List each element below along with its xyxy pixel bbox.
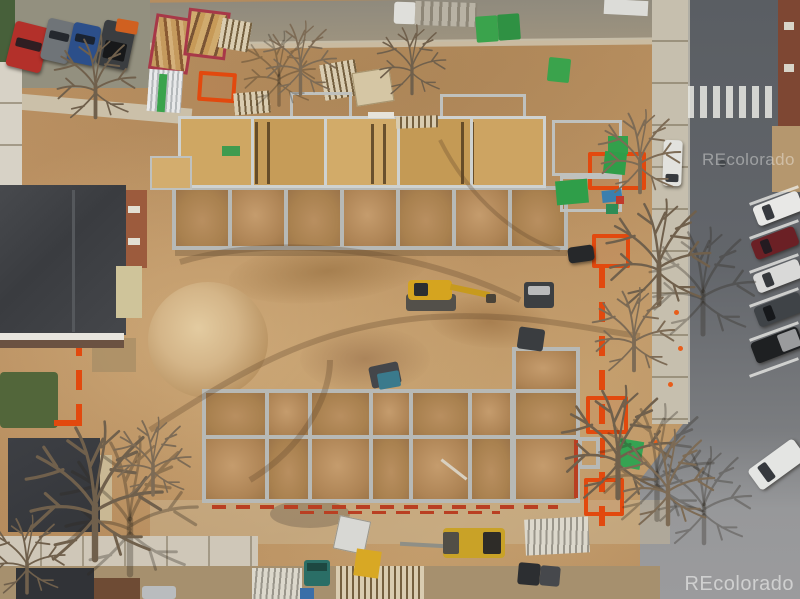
traffic-cone-3 [668, 382, 673, 387]
foundation-bay [232, 190, 284, 246]
green-fence-panel [616, 438, 644, 470]
stem-wall-bays [172, 186, 568, 250]
dirt-mound-2 [300, 326, 430, 392]
white-beam [368, 112, 394, 118]
osb-panel-left-wing [150, 156, 192, 190]
yellow-storage-box [353, 548, 382, 578]
excavator-bucket [486, 294, 496, 303]
foundation-grid-right-tower [512, 347, 580, 503]
aerial-construction-photo: REcolorado REcolorado [0, 0, 800, 599]
joist-gap-1 [246, 122, 272, 184]
backyard-lawn [0, 372, 58, 428]
tan-annex-roof [116, 266, 142, 318]
foundation-cell [413, 393, 468, 435]
building-shadow-line [175, 250, 567, 256]
foundation-cell [206, 439, 265, 499]
equipment-dark-right [517, 326, 546, 351]
foundation-cell [516, 393, 576, 435]
foundation-bay [288, 190, 340, 246]
excavator-cab [414, 283, 428, 296]
pallet-wood-stack [336, 566, 424, 599]
bottom-sidewalk [0, 536, 258, 566]
crosswalk-top-right [687, 86, 777, 118]
foundation-bay [456, 190, 508, 246]
framing-panel-stack [524, 516, 590, 555]
green-tarp-right-2 [603, 151, 627, 175]
orange-fence-square-staging [197, 71, 237, 104]
watermark-bottom-right: REcolorado [684, 573, 794, 596]
flatbed-truck-cab [394, 2, 417, 25]
foundation-cell [413, 439, 468, 499]
foundation-cell [312, 393, 369, 435]
skid-steer-gray [524, 282, 554, 308]
portable-toilet-1 [475, 15, 499, 42]
traffic-cone-2 [678, 346, 683, 351]
dark-truck-bottom-2 [539, 565, 561, 587]
bottom-edge-van [142, 586, 176, 599]
left-house-roof [0, 185, 126, 335]
green-tarp-on-deck [222, 146, 240, 156]
green-materials-2 [606, 204, 618, 214]
foundation-cell [516, 351, 576, 389]
tree-fence-square-2 [592, 234, 630, 268]
lumber-bundle [218, 18, 253, 53]
black-car-on-site [567, 244, 595, 263]
dark-truck-bottom-1 [517, 562, 541, 586]
red-pipe-vertical [574, 440, 578, 498]
bottom-left-house-roof [8, 438, 100, 532]
brick-building-edge [778, 0, 800, 126]
left-house-porch [0, 340, 124, 348]
foundation-cell [269, 439, 307, 499]
right-sidewalk [652, 0, 688, 424]
drill-rig-yellow [443, 528, 505, 558]
foundation-grid-main [202, 389, 514, 503]
joist-gap-2 [362, 124, 386, 184]
plywood-stack [352, 67, 395, 107]
pale-material-stack [252, 568, 302, 599]
foundation-cell [373, 439, 409, 499]
neighbor-brick-window [128, 206, 140, 213]
bottom-edge-roof-a [16, 568, 94, 599]
foundation-cell [312, 439, 369, 499]
foundation-cell [373, 393, 409, 435]
white-utility-truck-curbside [662, 140, 683, 187]
foundation-cell [472, 439, 510, 499]
orange-fence-left-horizontal [54, 420, 82, 426]
bottom-edge-roof-b [94, 578, 140, 599]
foundation-cell [472, 393, 510, 435]
flatbed-trailer [415, 1, 478, 27]
foundation-cell [206, 393, 265, 435]
tree-fence-square-3 [586, 396, 628, 434]
white-trailer-top-right [604, 0, 649, 16]
foundation-bay [176, 190, 228, 246]
lumber-pile [233, 90, 271, 115]
joist-gap-3 [452, 122, 474, 184]
watermark-top-right: REcolorado [702, 150, 795, 170]
left-house-roof-ridge [72, 190, 75, 332]
brick-building-window-1 [784, 22, 794, 30]
teal-machine-bottom [304, 560, 330, 586]
brick-building-window-2 [784, 64, 794, 72]
foundation-nub-wall [578, 437, 600, 469]
red-pipes-row-2 [300, 511, 500, 514]
traffic-cone-1 [674, 310, 679, 315]
red-cooler [616, 196, 624, 204]
tree-fence-square-4 [584, 478, 624, 516]
foundation-bay [344, 190, 396, 246]
foundation-bay [400, 190, 452, 246]
portable-toilet-2 [497, 13, 521, 40]
red-pipes-row [212, 505, 558, 509]
left-sidewalk [0, 62, 22, 187]
traffic-cone-4 [654, 440, 659, 445]
lumber-bundle-on-deck [396, 115, 438, 128]
blue-tarp-bottom [300, 588, 314, 599]
sand-pile [148, 282, 268, 398]
neighbor-brick-window-2 [128, 238, 140, 245]
left-house-eave [0, 333, 124, 340]
foundation-cell [269, 393, 307, 435]
orange-fence-left-yard [76, 336, 82, 432]
osb-panel-unit-5 [473, 119, 543, 185]
green-tarp-right-1 [555, 179, 589, 206]
foundation-cell [516, 439, 576, 499]
bottom-left-house-wall [100, 455, 112, 521]
portable-toilet-3 [547, 57, 571, 83]
